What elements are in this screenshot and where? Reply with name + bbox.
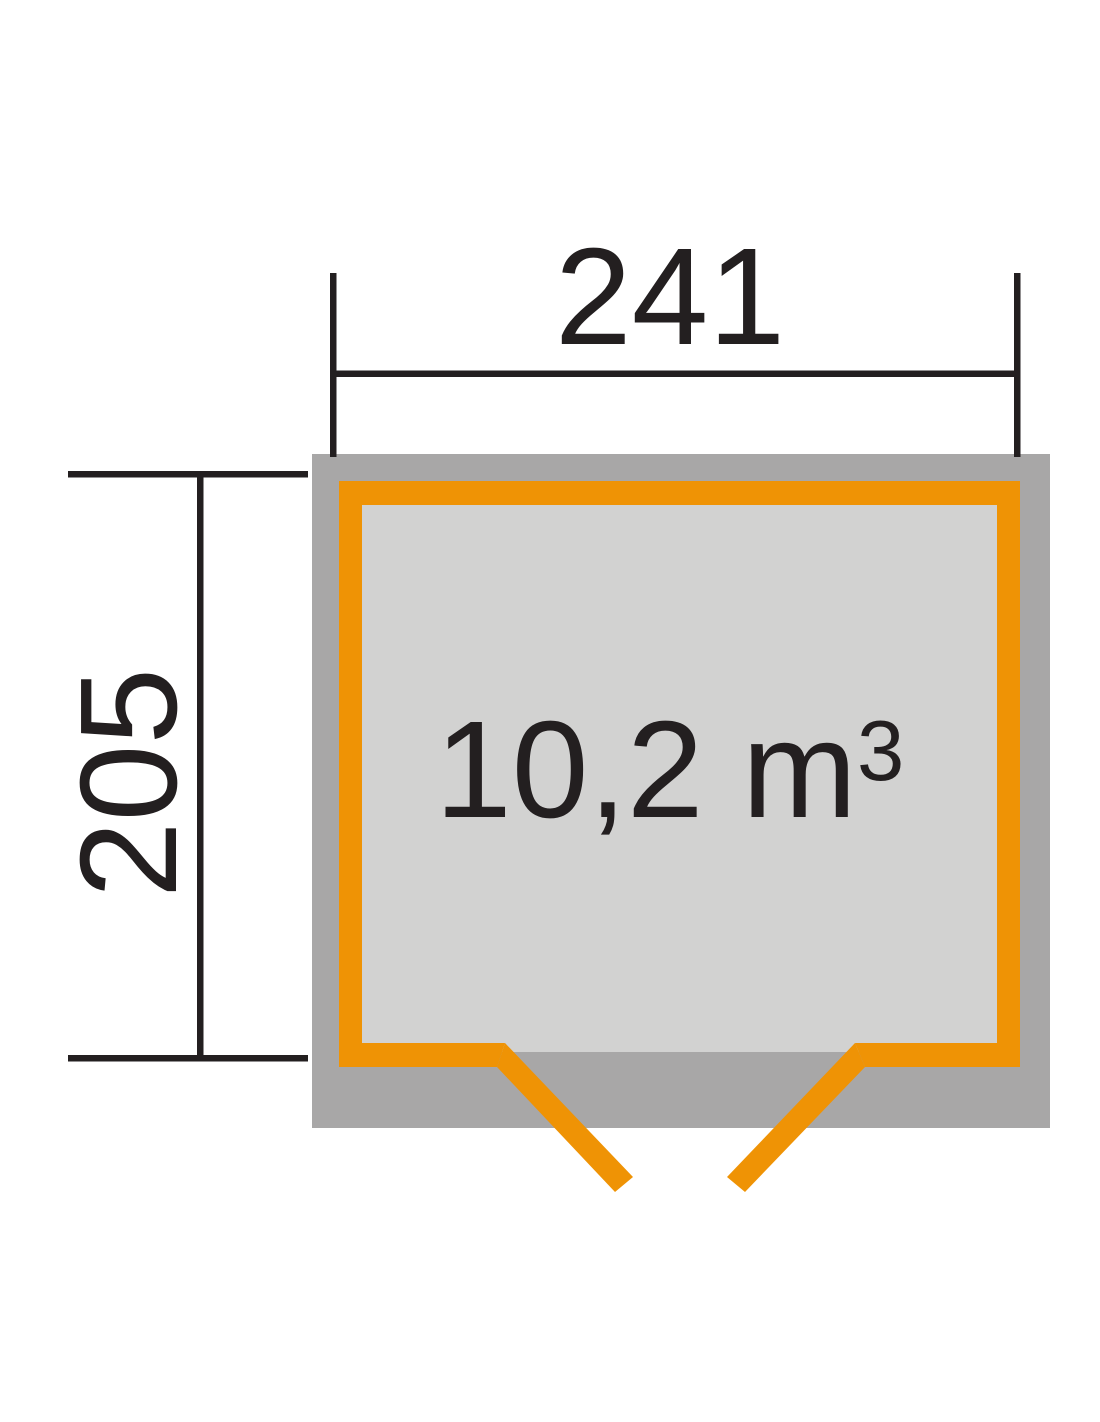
shed-floorplan-svg: 241 205 10,2 m 3 [0, 0, 1100, 1422]
floorplan-diagram: 241 205 10,2 m 3 [0, 0, 1100, 1422]
depth-dimension-label: 205 [52, 668, 206, 898]
volume-label: 10,2 m [435, 693, 857, 847]
door-opening-floor-strip [505, 1043, 855, 1052]
width-dimension-label: 241 [555, 220, 785, 374]
volume-exponent: 3 [857, 704, 904, 799]
